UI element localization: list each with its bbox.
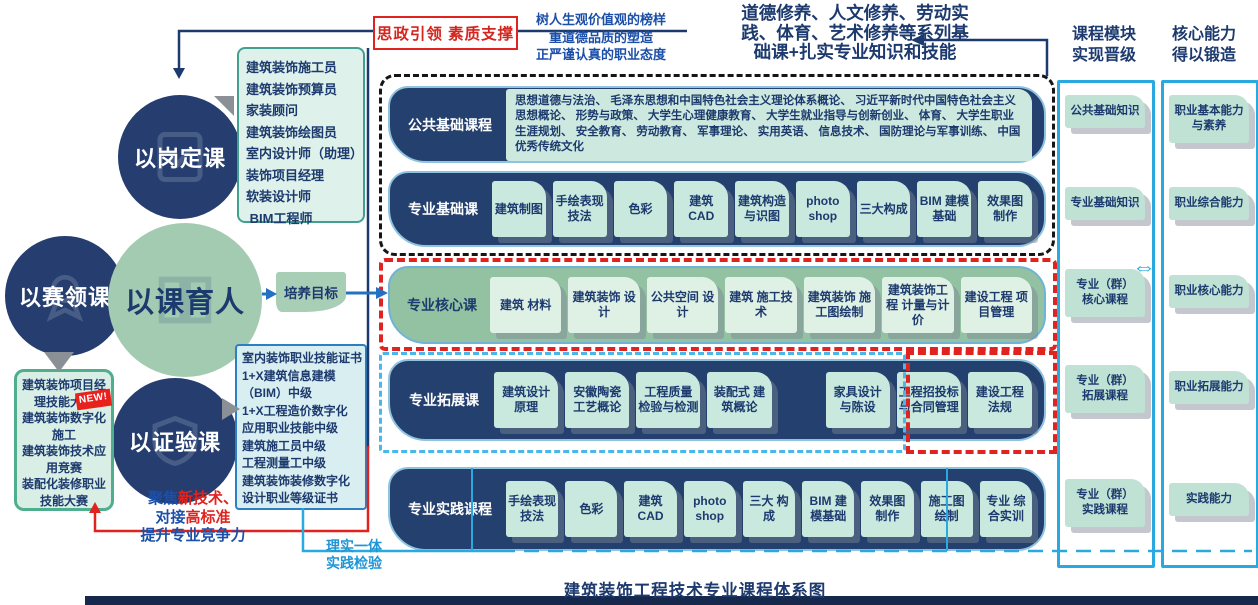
job-roles-box: 建筑装饰施工员 建筑装饰预算员 家装顾问 建筑装饰绘图员 室内设计师（助理） 装… xyxy=(237,47,365,223)
competition-item: 建筑装饰项目经理技能大赛NEW! xyxy=(21,377,107,410)
foundation-text: 道德修养、人文修养、劳动实 践、体育、艺术修养等系列基 础课+扎实专业知识和技能 xyxy=(688,4,1022,63)
competition-item: 建筑装饰技术应用竞赛 xyxy=(21,443,107,476)
course-chip: 建筑装饰工程 计量与计价 xyxy=(882,277,953,333)
course-chip: 建设工程 法规 xyxy=(968,372,1032,428)
core-ability-tag: 实践能力 xyxy=(1169,483,1249,516)
competition-item: 装配化装修职业技能大赛 xyxy=(21,476,107,509)
diagram-caption: 建筑装饰工程技术专业课程体系图 xyxy=(430,577,960,601)
certificates-box: 室内装饰职业技能证书 1+X建筑信息建模 （BIM）中级 1+X工程造价数字化 … xyxy=(235,344,367,510)
focus-segment: 、 xyxy=(223,490,238,507)
course-chip: 家具设计 与陈设 xyxy=(826,372,890,428)
row-pro-practice: 专业实践课程 手绘表现 技法色彩建筑 CADphoto shop三大 构成BIM… xyxy=(388,467,1046,551)
course-chip: 效果图 制作 xyxy=(861,481,913,537)
course-chip: 效果图 制作 xyxy=(978,181,1032,237)
row-public-basic: 公共基础课程 思想道德与法治、 毛泽东思想和中国特色社会主义理论体系概论、 习近… xyxy=(388,86,1046,163)
arrowhead-right-icon xyxy=(376,287,388,299)
core-ability-column: 职业基本能力 与素养职业综合能力职业核心能力职业拓展能力实践能力 xyxy=(1161,80,1258,568)
focus-segment: 新技术 xyxy=(178,490,223,507)
row-pro-core: 专业核心课 建筑 材料建筑装饰 设计公共空间 设计建筑 施工技术建筑装饰 施工图… xyxy=(388,266,1046,344)
core-ability-tag: 职业拓展能力 xyxy=(1169,371,1249,404)
course-chip: 建筑制图 xyxy=(492,181,546,237)
row-label: 专业实践课程 xyxy=(402,500,498,518)
row-label: 专业核心课 xyxy=(402,296,482,314)
arrowhead-down-icon xyxy=(173,68,185,79)
course-chip: 色彩 xyxy=(614,181,668,237)
row-label: 公共基础课程 xyxy=(402,116,498,134)
course-chip: 工程质量 检验与检测 xyxy=(636,372,700,428)
core-ability-tag: 职业综合能力 xyxy=(1169,187,1249,220)
focus-segment: 聚焦 xyxy=(148,490,178,507)
course-chip: 手绘表现 技法 xyxy=(506,481,558,537)
course-chip: 公共空间 设计 xyxy=(647,277,718,333)
circle-competition-course: 以赛领课 xyxy=(5,236,125,356)
course-chip: BIM 建模 基础 xyxy=(917,181,971,237)
focus-segment: 对接 xyxy=(155,509,185,526)
row-label: 专业基础课 xyxy=(402,200,484,218)
focus-text: 聚焦新技术、对接高标准提升专业竞争力 xyxy=(118,490,268,546)
course-chip: 建筑 CAD xyxy=(674,181,728,237)
course-chip: 工程招投标 与合同管理 xyxy=(897,372,961,428)
course-module-tag: 专业（群） 实践课程 xyxy=(1065,479,1145,527)
course-chip: photo shop xyxy=(796,181,850,237)
competition-item: 建筑装饰数字化施工 xyxy=(21,410,107,443)
core-ability-tag: 职业基本能力 与素养 xyxy=(1169,95,1249,143)
practice-note: 理实一体 实践检验 xyxy=(316,538,392,572)
focus-line: 对接高标准 xyxy=(118,509,268,528)
course-chip: 建筑 CAD xyxy=(624,481,676,537)
course-chip: BIM 建模基础 xyxy=(802,481,854,537)
focus-segment: 提升专业竞争力 xyxy=(140,527,245,544)
row-pro-basic: 专业基础课 建筑制图手绘表现 技法色彩建筑 CAD建筑构造 与识图photo s… xyxy=(388,171,1046,247)
chip-list: 建筑制图手绘表现 技法色彩建筑 CAD建筑构造 与识图photo shop三大构… xyxy=(492,181,1032,237)
swap-arrows-icon: ⇔ xyxy=(1132,254,1156,282)
course-chip: 三大构成 xyxy=(857,181,911,237)
focus-line: 聚焦新技术、 xyxy=(118,490,268,509)
course-module-column: 公共基础知识专业基础知识专业（群） 核心课程专业（群） 拓展课程专业（群） 实践… xyxy=(1057,80,1155,568)
training-goal-shape: 培养目标 xyxy=(276,272,346,312)
competitions-box: 建筑装饰项目经理技能大赛NEW!建筑装饰数字化施工建筑装饰技术应用竞赛装配化装修… xyxy=(14,369,114,511)
core-ability-tag: 职业核心能力 xyxy=(1169,275,1249,308)
circle-certificate-course: 以证验课 xyxy=(112,378,238,504)
course-chip: 建筑装饰 施工图绘制 xyxy=(804,277,875,333)
curriculum-diagram: 思政引领 素质支撑 树人生观价值观的榜样 重道德品质的塑造 正严谨认真的职业态度… xyxy=(0,0,1258,605)
course-chip: 建设工程 项目管理 xyxy=(961,277,1032,333)
values-text: 树人生观价值观的榜样 重道德品质的塑造 正严谨认真的职业态度 xyxy=(512,11,690,64)
course-chip: 建筑 施工技术 xyxy=(725,277,796,333)
focus-line: 提升专业竞争力 xyxy=(118,527,268,546)
shield-icon xyxy=(145,411,205,471)
focus-segment: 高标准 xyxy=(186,509,231,526)
chip-list: 建筑设计 原理安徽陶瓷 工艺概论工程质量 检验与检测装配式 建筑概论家具设计 与… xyxy=(494,372,1032,428)
course-chip: 施工图 绘制 xyxy=(921,481,973,537)
new-badge: NEW! xyxy=(75,389,112,410)
chip-list: 建筑 材料建筑装饰 设计公共空间 设计建筑 施工技术建筑装饰 施工图绘制建筑装饰… xyxy=(490,277,1032,333)
medal-icon xyxy=(37,268,93,324)
column-header-abilities: 核心能力 得以锻造 xyxy=(1158,24,1250,66)
course-chip: 建筑装饰 设计 xyxy=(568,277,639,333)
course-chip: 安徽陶瓷 工艺概论 xyxy=(565,372,629,428)
course-chip: 建筑构造 与识图 xyxy=(735,181,789,237)
course-chip: photo shop xyxy=(684,481,736,537)
ideology-banner: 思政引领 素质支撑 xyxy=(373,16,518,50)
column-header-modules: 课程模块 实现晋级 xyxy=(1058,24,1150,66)
public-basic-courses: 思想道德与法治、 毛泽东思想和中国特色社会主义理论体系概论、 习近平新时代中国特… xyxy=(506,89,1032,161)
circle-post-course: 以岗定课 xyxy=(118,95,242,219)
course-chip: 三大 构成 xyxy=(743,481,795,537)
course-chip: 色彩 xyxy=(565,481,617,537)
row-label: 专业拓展课 xyxy=(402,391,486,409)
clipboard-icon xyxy=(150,127,210,187)
course-chip: 装配式 建筑概论 xyxy=(707,372,771,428)
course-module-tag: 专业基础知识 xyxy=(1065,187,1145,220)
course-chip: 专业 综合实训 xyxy=(980,481,1032,537)
chip-list: 手绘表现 技法色彩建筑 CADphoto shop三大 构成BIM 建模基础效果… xyxy=(506,481,1032,537)
course-chip: 建筑 材料 xyxy=(490,277,561,333)
course-module-tag: 专业（群） 拓展课程 xyxy=(1065,365,1145,413)
book-icon xyxy=(150,265,220,335)
course-module-tag: 公共基础知识 xyxy=(1065,95,1145,128)
row-pro-extend: 专业拓展课 建筑设计 原理安徽陶瓷 工艺概论工程质量 检验与检测装配式 建筑概论… xyxy=(388,359,1046,441)
course-chip: 建筑设计 原理 xyxy=(494,372,558,428)
course-chip: 手绘表现 技法 xyxy=(553,181,607,237)
